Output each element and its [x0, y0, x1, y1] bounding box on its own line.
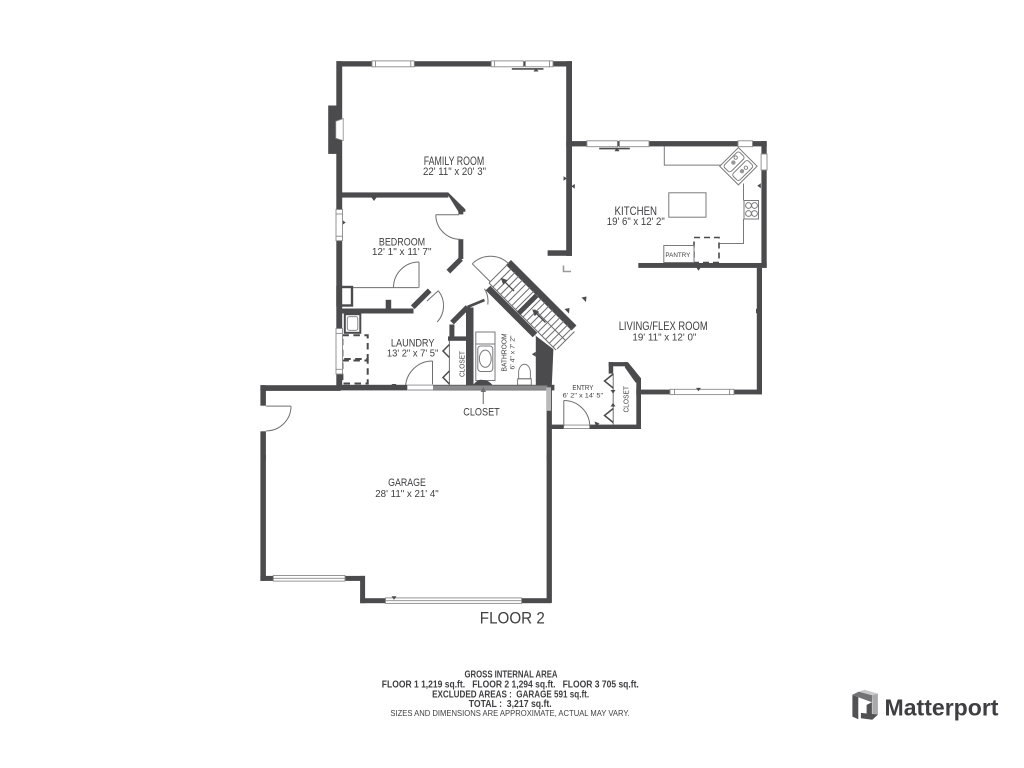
svg-text:Matterport: Matterport	[885, 695, 999, 721]
svg-text:BATHROOM: BATHROOM	[500, 334, 509, 372]
svg-text:28' 11" x 21' 4": 28' 11" x 21' 4"	[375, 489, 439, 500]
svg-text:12' 1" x 11' 7": 12' 1" x 11' 7"	[372, 247, 432, 258]
svg-text:22' 11" x 20' 3": 22' 11" x 20' 3"	[423, 166, 486, 178]
svg-text:LIVING/FLEX ROOM: LIVING/FLEX ROOM	[619, 319, 708, 333]
svg-text:PANTRY: PANTRY	[665, 252, 691, 259]
svg-text:6' 4" x 7' 2": 6' 4" x 7' 2"	[510, 335, 517, 370]
svg-text:CLOSET: CLOSET	[458, 350, 467, 377]
svg-text:13' 2" x 7' 5": 13' 2" x 7' 5"	[387, 348, 439, 359]
svg-text:6' 2" x 14' 5": 6' 2" x 14' 5"	[563, 392, 603, 399]
svg-text:ENTRY: ENTRY	[572, 383, 593, 392]
svg-text:19' 6" x 12' 2": 19' 6" x 12' 2"	[607, 216, 665, 228]
svg-text:CLOSET: CLOSET	[622, 385, 631, 412]
svg-text:19' 11" x 12' 0": 19' 11" x 12' 0"	[632, 332, 696, 343]
svg-text:GARAGE: GARAGE	[388, 477, 426, 489]
svg-text:CLOSET: CLOSET	[463, 407, 500, 419]
svg-text:FLOOR 2: FLOOR 2	[480, 609, 545, 628]
svg-text:SIZES AND DIMENSIONS ARE APPRO: SIZES AND DIMENSIONS ARE APPROXIMATE, AC…	[390, 709, 629, 718]
